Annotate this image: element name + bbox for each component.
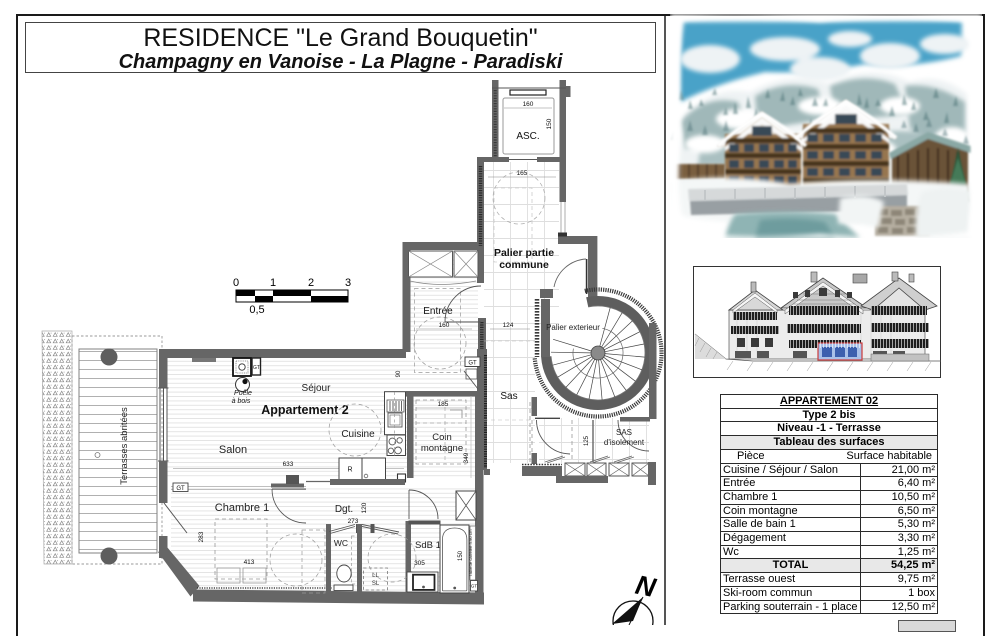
svg-text:165: 165 (517, 170, 528, 177)
svg-text:à bois: à bois (232, 398, 251, 405)
svg-text:1: 1 (270, 277, 276, 289)
svg-text:commune: commune (499, 259, 549, 271)
svg-text:Entrée: Entrée (423, 306, 453, 317)
svg-text:Appartement 2: Appartement 2 (261, 403, 349, 417)
svg-text:GT: GT (253, 365, 260, 371)
svg-text:WC: WC (334, 538, 348, 548)
svg-text:ASC.: ASC. (516, 131, 539, 142)
svg-text:GT: GT (176, 486, 185, 492)
svg-text:633: 633 (283, 461, 294, 468)
svg-text:SdB 1: SdB 1 (415, 540, 441, 551)
svg-text:283: 283 (198, 531, 205, 542)
svg-text:273: 273 (348, 518, 359, 525)
svg-text:Palier partie: Palier partie (494, 247, 554, 259)
svg-text:150: 150 (458, 550, 464, 561)
svg-text:Terrasses abritées: Terrasses abritées (119, 407, 130, 485)
svg-text:GT: GT (471, 584, 478, 589)
svg-text:185: 185 (438, 401, 449, 408)
svg-text:0: 0 (233, 277, 239, 289)
svg-text:120: 120 (361, 502, 368, 513)
svg-text:Palier exterieur: Palier exterieur (546, 323, 600, 332)
svg-text:Salon: Salon (219, 444, 247, 456)
svg-text:305: 305 (414, 560, 425, 567)
svg-text:125: 125 (584, 435, 590, 446)
svg-text:3: 3 (345, 277, 351, 289)
svg-text:GT: GT (468, 361, 477, 367)
svg-text:2: 2 (308, 277, 314, 289)
svg-text:Tablette carrelée h.90 cm: Tablette carrelée h.90 cm (468, 529, 473, 577)
svg-text:SL: SL (372, 581, 380, 587)
svg-text:413: 413 (244, 559, 255, 566)
svg-text:Séjour: Séjour (302, 383, 332, 394)
svg-text:90: 90 (396, 370, 402, 377)
svg-text:349: 349 (463, 452, 470, 463)
svg-text:Dgt.: Dgt. (335, 504, 353, 515)
svg-text:Chambre 1: Chambre 1 (215, 502, 269, 514)
svg-text:montagne: montagne (421, 443, 463, 454)
svg-text:N: N (633, 570, 659, 604)
svg-text:d'isolement: d'isolement (604, 438, 645, 447)
svg-text:Poêle: Poêle (234, 390, 252, 397)
svg-text:Coin: Coin (432, 432, 452, 443)
svg-text:124: 124 (503, 322, 514, 329)
svg-text:160: 160 (439, 322, 450, 329)
svg-text:Cuisine: Cuisine (341, 429, 375, 440)
svg-text:SAS: SAS (616, 428, 632, 437)
svg-text:150: 150 (546, 118, 553, 129)
svg-text:0,5: 0,5 (249, 304, 264, 316)
svg-text:R: R (347, 467, 352, 474)
svg-text:Sas: Sas (500, 391, 517, 402)
svg-text:160: 160 (523, 101, 534, 108)
